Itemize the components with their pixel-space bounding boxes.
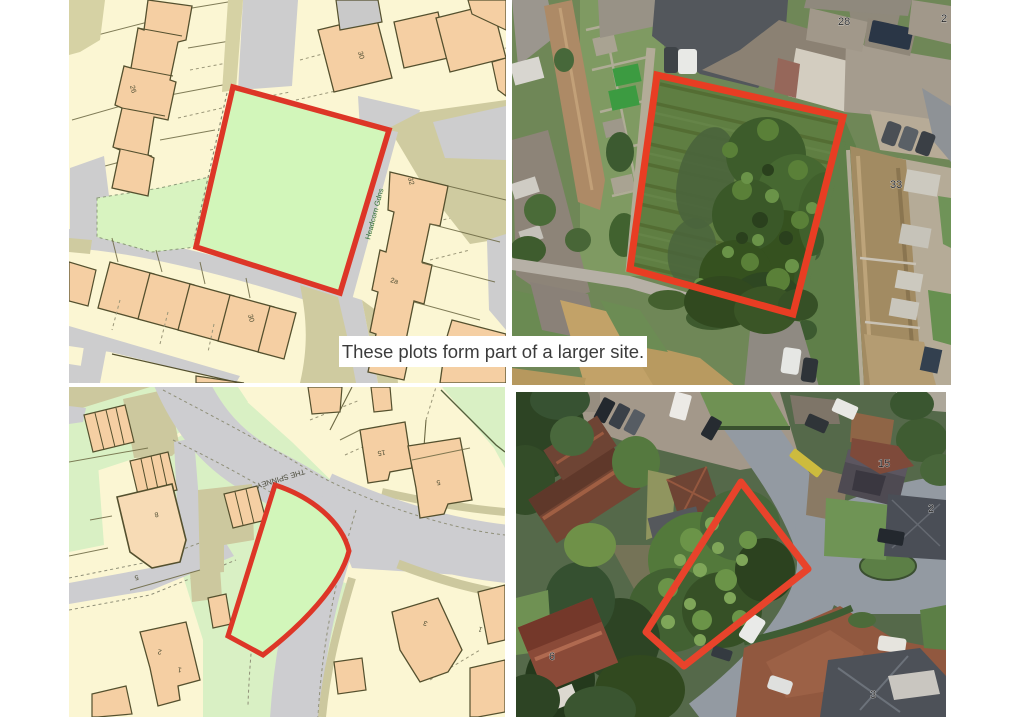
svg-text:2: 2 — [928, 503, 934, 515]
svg-text:33: 33 — [890, 179, 902, 191]
svg-text:15: 15 — [377, 448, 386, 456]
svg-text:2: 2 — [941, 13, 947, 25]
svg-text:3: 3 — [870, 689, 876, 701]
svg-text:15: 15 — [878, 458, 890, 470]
svg-text:6: 6 — [549, 651, 555, 663]
svg-text:28: 28 — [838, 16, 850, 28]
